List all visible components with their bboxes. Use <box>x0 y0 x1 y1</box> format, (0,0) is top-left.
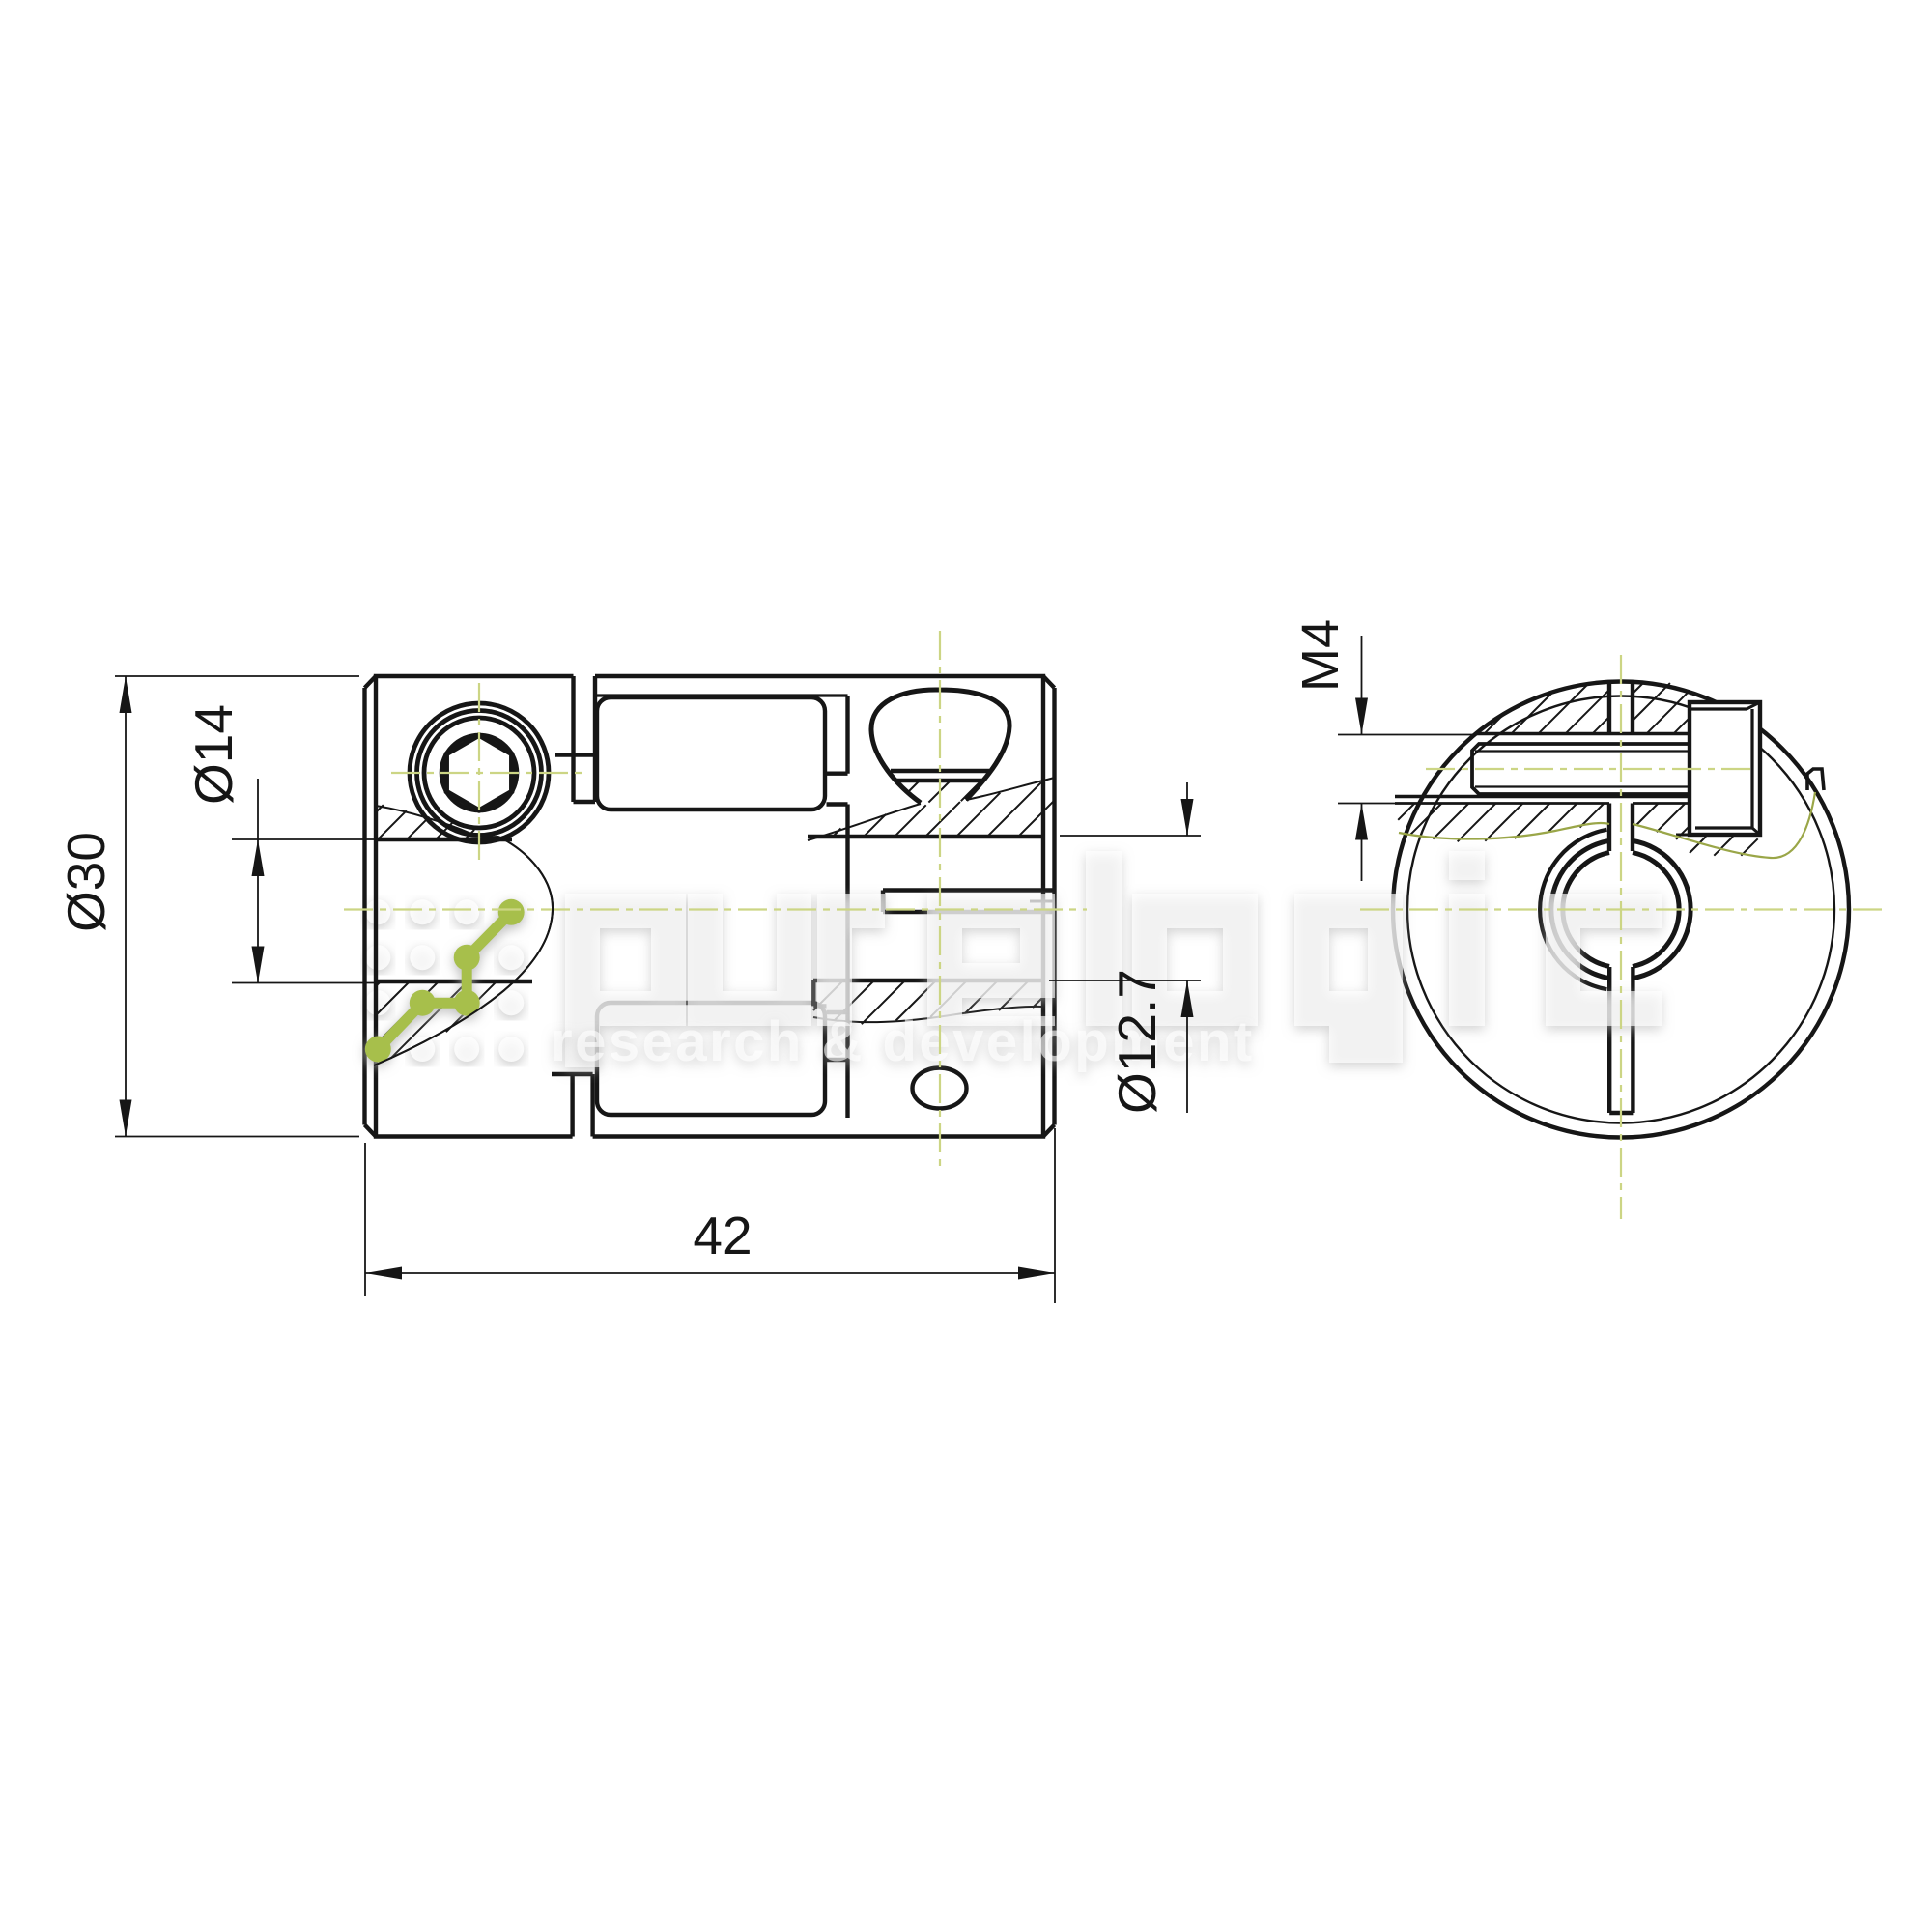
svg-text:42: 42 <box>693 1206 752 1265</box>
svg-text:Ø12.7: Ø12.7 <box>1107 969 1167 1114</box>
svg-text:M4: M4 <box>1292 619 1350 692</box>
svg-text:Ø30: Ø30 <box>56 832 116 932</box>
svg-text:Ø14: Ø14 <box>184 704 243 805</box>
